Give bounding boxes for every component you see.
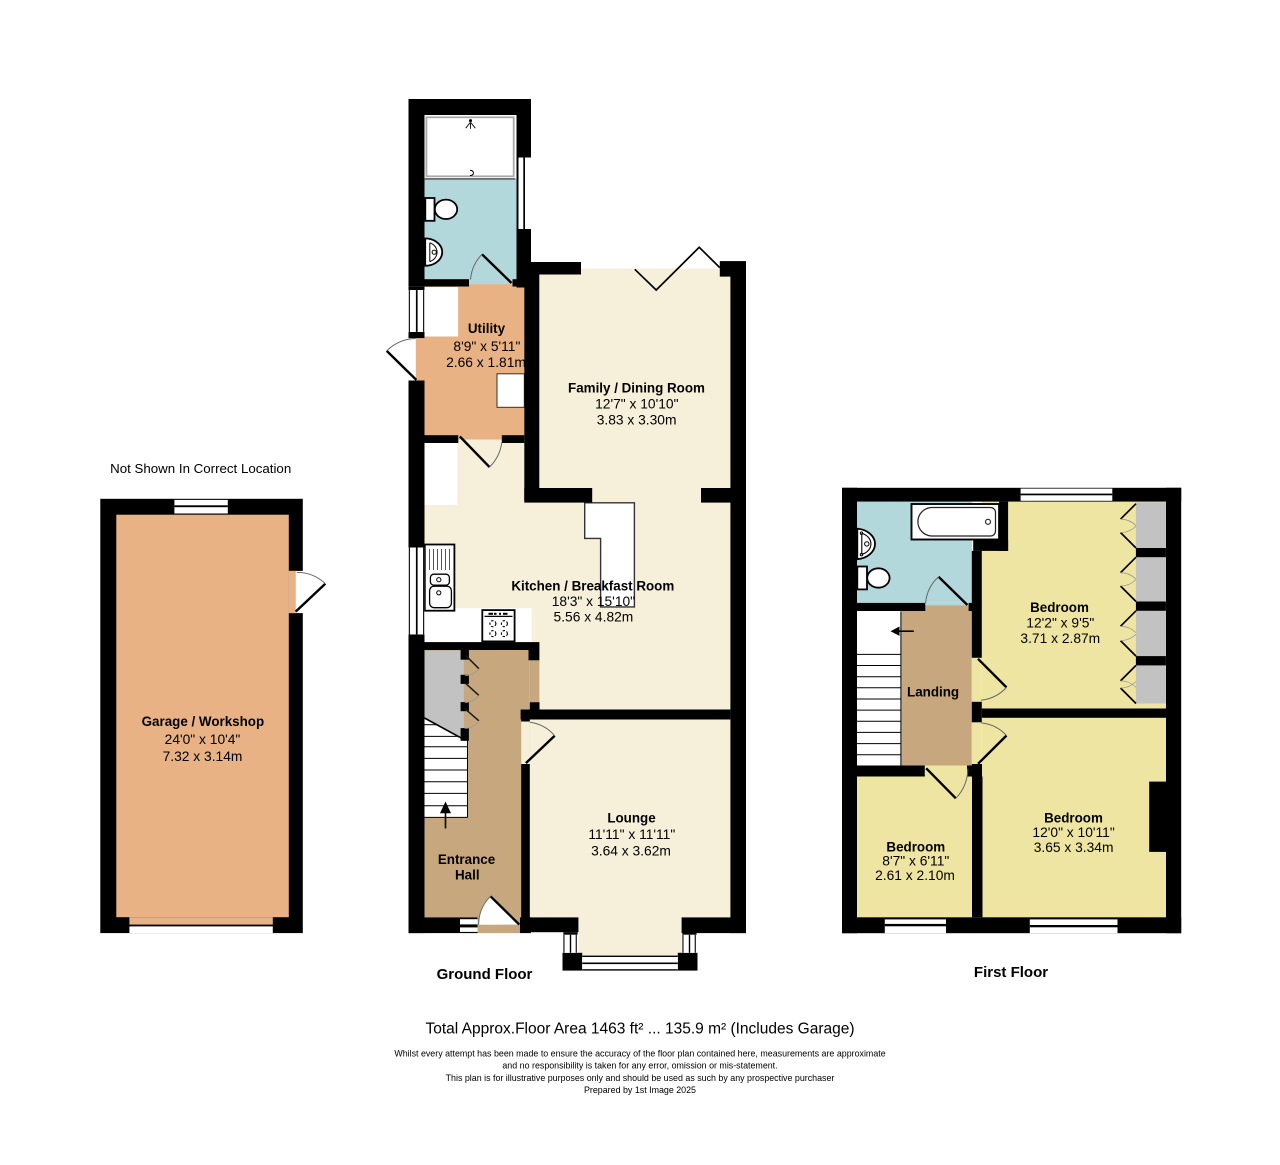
svg-text:7.32 x 3.14m: 7.32 x 3.14m: [163, 749, 243, 764]
svg-text:Bedroom: Bedroom: [886, 839, 945, 854]
svg-text:Lounge: Lounge: [607, 810, 655, 825]
svg-text:Ground Floor: Ground Floor: [437, 966, 533, 983]
svg-text:3.65 x 3.34m: 3.65 x 3.34m: [1034, 840, 1114, 855]
svg-text:Kitchen / Breakfast Room: Kitchen / Breakfast Room: [511, 579, 674, 594]
svg-text:Bedroom: Bedroom: [1030, 600, 1089, 615]
svg-text:8'9" x 5'11": 8'9" x 5'11": [453, 339, 520, 354]
svg-text:5.56 x 4.82m: 5.56 x 4.82m: [554, 610, 634, 625]
svg-text:Total Approx.Floor Area 1463 f: Total Approx.Floor Area 1463 ft² ... 135…: [425, 1021, 854, 1038]
svg-text:This plan is for illustrative: This plan is for illustrative purposes o…: [446, 1073, 835, 1083]
svg-text:2.61 x 2.10m: 2.61 x 2.10m: [875, 868, 955, 883]
svg-text:Family / Dining Room: Family / Dining Room: [568, 381, 705, 396]
svg-text:Landing: Landing: [907, 684, 959, 699]
svg-text:12'0" x 10'11": 12'0" x 10'11": [1032, 825, 1114, 840]
svg-text:Whilst every attempt has been: Whilst every attempt has been made to en…: [394, 1049, 885, 1059]
svg-text:Entrance: Entrance: [438, 852, 495, 867]
svg-text:11'11" x 11'11": 11'11" x 11'11": [588, 827, 675, 842]
svg-text:3.71 x 2.87m: 3.71 x 2.87m: [1020, 631, 1100, 646]
svg-text:Bedroom: Bedroom: [1044, 811, 1103, 826]
svg-text:12'7" x 10'10": 12'7" x 10'10": [595, 397, 678, 412]
svg-text:Garage / Workshop: Garage / Workshop: [142, 714, 265, 729]
svg-text:2.66 x 1.81m: 2.66 x 1.81m: [446, 355, 526, 370]
svg-text:3.83 x 3.30m: 3.83 x 3.30m: [597, 413, 677, 428]
svg-text:3.64 x 3.62m: 3.64 x 3.62m: [591, 843, 671, 858]
svg-text:Hall: Hall: [455, 868, 480, 883]
svg-text:8'7" x 6'11": 8'7" x 6'11": [882, 854, 949, 869]
svg-text:First Floor: First Floor: [974, 964, 1048, 981]
svg-text:and no responsibility is taken: and no responsibility is taken for any e…: [502, 1061, 777, 1071]
svg-text:12'2" x 9'5": 12'2" x 9'5": [1026, 615, 1094, 630]
svg-text:Prepared by 1st Image 2025: Prepared by 1st Image 2025: [584, 1085, 696, 1095]
svg-text:Utility: Utility: [468, 321, 506, 336]
svg-text:Not Shown In Correct Location: Not Shown In Correct Location: [110, 461, 291, 476]
svg-text:24'0" x 10'4": 24'0" x 10'4": [165, 732, 241, 747]
svg-text:18'3" x 15'10": 18'3" x 15'10": [552, 594, 635, 609]
